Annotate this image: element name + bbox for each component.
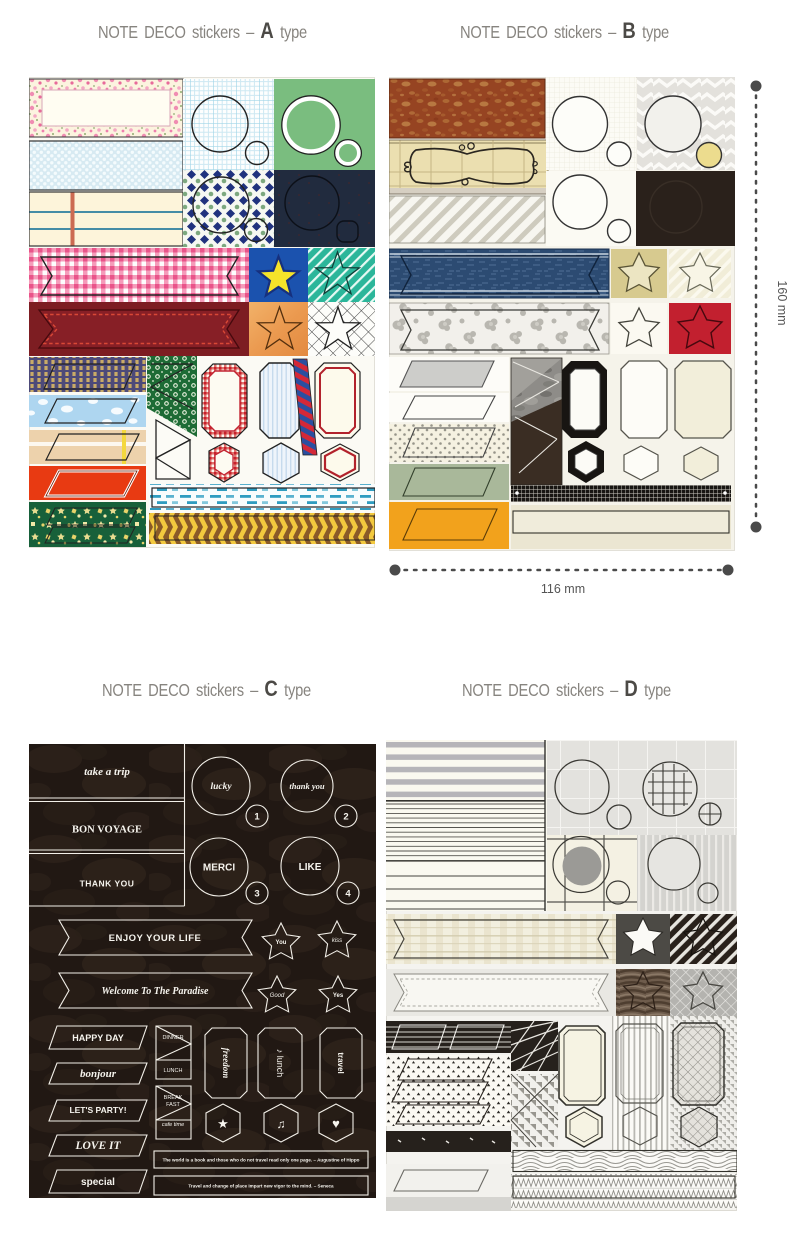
svg-text:MERCI: MERCI: [203, 863, 235, 874]
svg-text:♫: ♫: [277, 1117, 286, 1131]
svg-text:♥: ♥: [332, 1116, 340, 1131]
svg-text:LET'S PARTY!: LET'S PARTY!: [69, 1105, 126, 1115]
svg-text:Good: Good: [270, 993, 285, 999]
svg-text:LUNCH: LUNCH: [164, 1068, 183, 1074]
svg-text:thank you: thank you: [289, 781, 324, 791]
svg-text:BON VOYAGE: BON VOYAGE: [72, 825, 142, 836]
svg-text:kiss: kiss: [332, 938, 342, 944]
svg-text:DINNER: DINNER: [162, 1035, 183, 1041]
svg-text:The world is a book and those: The world is a book and those who do not…: [163, 1158, 360, 1163]
svg-text:take a trip: take a trip: [84, 766, 130, 778]
svg-text:LIKE: LIKE: [299, 862, 322, 873]
svg-text:You: You: [276, 940, 287, 946]
svg-text:special: special: [81, 1177, 115, 1188]
svg-text:THANK YOU: THANK YOU: [80, 879, 135, 889]
svg-text:3: 3: [254, 889, 259, 900]
svg-text:160 mm: 160 mm: [775, 280, 789, 325]
svg-text:FAST: FAST: [166, 1102, 180, 1108]
svg-text:ENJOY YOUR LIFE: ENJOY YOUR LIFE: [109, 933, 202, 944]
svg-text:bonjour: bonjour: [80, 1068, 117, 1080]
svg-text:Travel and change of place imp: Travel and change of place impart new vi…: [188, 1184, 334, 1189]
svg-text:4: 4: [345, 889, 351, 900]
svg-text:LOVE IT: LOVE IT: [74, 1140, 121, 1152]
svg-text:Yes: Yes: [333, 993, 344, 999]
svg-text:116 mm: 116 mm: [541, 582, 585, 596]
svg-text:♪ lunch: ♪ lunch: [275, 1049, 285, 1078]
svg-text:travel: travel: [336, 1052, 345, 1073]
svg-text:HAPPY DAY: HAPPY DAY: [72, 1033, 124, 1043]
svg-text:cafe time: cafe time: [162, 1122, 184, 1128]
svg-text:lucky: lucky: [210, 782, 232, 792]
svg-text:Welcome To The Paradise: Welcome To The Paradise: [102, 986, 209, 997]
svg-text:1: 1: [254, 812, 260, 823]
svg-text:freedom: freedom: [221, 1048, 231, 1079]
svg-text:★: ★: [217, 1116, 229, 1131]
svg-text:2: 2: [343, 812, 348, 823]
svg-text:BREAK: BREAK: [164, 1095, 183, 1101]
